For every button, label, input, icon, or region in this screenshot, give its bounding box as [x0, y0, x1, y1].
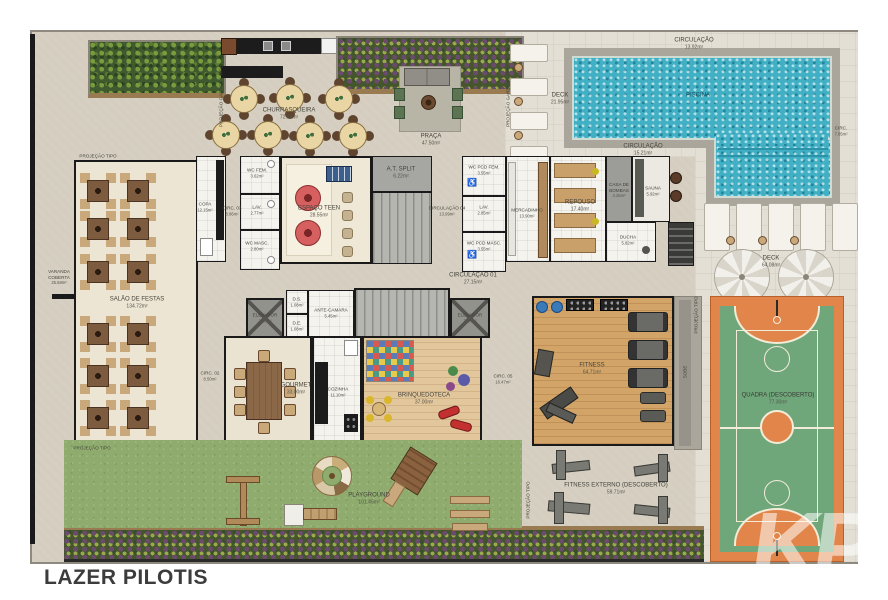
annotation-proj-garden-right: PROJEÇÃO GARDEN 1 TIPO	[505, 65, 511, 127]
repouso-lounger	[554, 213, 596, 228]
room-label-ante-camara: ANTE-CAMARA5.45m²	[314, 308, 347, 319]
room-label-wc-pcd-masc: WC PCD MASC.3.55m²	[467, 241, 501, 252]
square-table	[87, 180, 109, 202]
round-table	[339, 122, 367, 150]
service-stair-down	[668, 222, 694, 266]
side-table	[514, 97, 523, 106]
annotation-proj-garden-left: PROJEÇÃO GARDEN 1 TIPO	[218, 65, 224, 127]
room-label-circ-direita: CIRC.7.85m²	[834, 126, 847, 137]
room-label-sauna: SAUNA5.92m²	[645, 186, 661, 197]
pool-water-joint	[716, 134, 828, 144]
page-title: LAZER PILOTIS	[44, 566, 208, 590]
room-label-at-split: A.T. SPLIT6.22m²	[387, 166, 416, 179]
room-label-lav2: LAV.2.85m²	[477, 205, 490, 216]
chair	[284, 404, 296, 416]
room-label-de: D.E.1.08m²	[290, 321, 303, 332]
picnic-bench	[450, 496, 490, 504]
climber-box	[284, 504, 304, 526]
room-label-mercadinho: MERCADINHO13.90m²	[511, 208, 542, 219]
square-table	[87, 261, 109, 283]
round-table	[230, 85, 258, 113]
sun-lounger	[832, 203, 858, 251]
room-label-deck-direito: DECK64.08m²	[762, 255, 780, 268]
room-label-circ03: CIRC. 038.86m²	[223, 206, 242, 217]
round-table	[296, 122, 324, 150]
swing-bar	[226, 518, 260, 525]
square-table	[127, 261, 149, 283]
sun-lounger	[510, 112, 548, 130]
annotation-proj-tipo-fitness: PROJEÇÃO TIPO	[693, 296, 699, 333]
room-label-salao: SALÃO DE FESTAS134.72m²	[110, 296, 165, 309]
bbq-fridge	[321, 38, 337, 54]
chair	[284, 368, 296, 380]
teen-game-table	[295, 220, 321, 246]
round-table	[325, 85, 353, 113]
toy	[458, 374, 470, 386]
wheelchair-icon: ♿	[467, 250, 477, 259]
annotation-proj-tipo-bottom: PROJEÇÃO TIPO	[73, 445, 110, 451]
sun-lounger	[800, 203, 826, 251]
room-label-circulacao04: CIRCULAÇÃO 0413.99m²	[429, 206, 466, 217]
outdoor-gym-machine	[556, 450, 566, 480]
foosball-table	[326, 166, 352, 182]
kitchen-fridge	[344, 340, 358, 356]
round-table	[254, 121, 282, 149]
kitchen-island	[315, 362, 328, 424]
side-table	[758, 236, 767, 245]
toilet-icon	[267, 160, 275, 168]
sink-icon	[267, 200, 275, 208]
sun-lounger	[704, 203, 730, 251]
toy	[446, 382, 455, 391]
copa-fridge	[200, 238, 213, 256]
plant-pot	[592, 168, 599, 175]
room-label-lav1: LAV.2.77m²	[250, 205, 263, 216]
terrace-table	[670, 190, 682, 202]
plant-pot	[592, 218, 599, 225]
praca-center-table	[421, 95, 436, 110]
chair	[258, 350, 270, 362]
annotation-proj-tipo-top: PROJEÇÃO TIPO	[79, 153, 116, 159]
room-label-ds: D.S.1.08m²	[290, 297, 303, 308]
pool-lane-line	[718, 148, 828, 150]
room-label-deck-piscina: DECK21.95m²	[551, 92, 569, 105]
room-label-wc-masc: WC MASC.2.80m²	[245, 241, 268, 252]
chair	[258, 422, 270, 434]
room-label-espaco-teen: ESPAÇO TEEN28.55m²	[298, 205, 340, 218]
treadmill	[628, 340, 668, 360]
exercise-ball	[551, 301, 563, 313]
room-label-sobe: SOBE	[682, 366, 688, 379]
side-table	[514, 131, 523, 140]
treadmill	[628, 368, 668, 388]
room-label-gourmet: GOURMET33.00m²	[281, 382, 312, 395]
dumbbell-rack	[566, 299, 594, 311]
treadmill	[628, 312, 668, 332]
play-mat	[366, 340, 414, 382]
repouso-lounger	[554, 238, 596, 253]
square-table	[127, 218, 149, 240]
outdoor-gym-machine	[658, 454, 668, 482]
wc-pcd-fem-room	[462, 156, 506, 196]
room-label-circulacao-topo: CIRCULAÇÃO13.92m²	[674, 37, 713, 50]
hoop-post-top	[776, 300, 778, 316]
room-label-repouso: REPOUSO17.40m²	[565, 199, 595, 212]
outer-wall-left	[30, 34, 35, 544]
picnic-bench	[452, 523, 488, 531]
room-label-piscina: PISCINA	[686, 92, 710, 99]
square-table	[87, 365, 109, 387]
climber-bar	[303, 508, 337, 520]
outdoor-gym-machine	[554, 492, 564, 524]
room-label-varanda: VARANDA COBERTA25.58m²	[45, 269, 73, 285]
room-label-churrasqueira: CHURRASQUEIRA72.84m²	[263, 107, 316, 120]
room-label-wc-pcd-fem: WC PCD FEM.3.55m²	[469, 165, 500, 176]
room-label-copa: COPA12.15m²	[197, 202, 212, 213]
room-label-quadra: QUADRA (DESCOBERTO)77.30m²	[742, 392, 815, 405]
bean-bag	[342, 228, 353, 239]
room-label-cozinha: COZINHA11.10m²	[328, 387, 349, 398]
chair	[234, 368, 246, 380]
repouso-lounger	[554, 163, 596, 178]
square-table	[127, 180, 149, 202]
praca-armchair	[394, 88, 405, 101]
room-label-ducha: DUCHA5.82m²	[620, 235, 636, 246]
bean-bag	[342, 210, 353, 221]
bbq-sink	[281, 41, 291, 51]
square-table	[127, 323, 149, 345]
gym-machine	[640, 392, 666, 404]
kitchen-stove	[344, 414, 358, 432]
room-label-elevador-dir: ELEVADOR3.80m²	[458, 313, 483, 324]
kp-watermark-logo: KP	[744, 492, 877, 600]
court-center-circle	[760, 410, 794, 444]
sun-lounger	[510, 78, 548, 96]
praca-armchair	[452, 88, 463, 101]
gym-machine	[640, 410, 666, 422]
bbq-sink	[263, 41, 273, 51]
shower-icon	[642, 246, 650, 254]
bean-bag	[342, 246, 353, 257]
chair	[234, 404, 246, 416]
room-label-brinquedoteca: BRINQUEDOTECA37.00m²	[398, 392, 450, 405]
sun-lounger	[510, 44, 548, 62]
chair	[234, 386, 246, 398]
toilet-icon	[267, 256, 275, 264]
bbq-grill-box	[221, 38, 237, 55]
room-label-playground: PLAYGROUND101.45m²	[348, 492, 390, 505]
room-label-fitness-externo: FITNESS EXTERNO (DESCOBERTO)59.71m²	[564, 482, 667, 495]
sun-lounger	[768, 203, 794, 251]
room-label-wc-fem: WC FEM.3.62m²	[247, 168, 267, 179]
side-table	[726, 236, 735, 245]
wheelchair-icon: ♿	[467, 178, 477, 187]
swing-bar	[226, 476, 260, 483]
kids-table	[372, 402, 386, 416]
copa-counter	[216, 160, 224, 240]
gourmet-table	[246, 362, 282, 420]
carousel-hub	[329, 473, 335, 479]
dumbbell-rack	[600, 299, 628, 311]
bean-bag	[342, 192, 353, 203]
annotation-proj-tipo-externo: PROJEÇÃO TIPO	[525, 481, 531, 518]
room-label-fitness: FITNESS64.71m²	[579, 362, 604, 375]
room-label-circulacao-piscina: CIRCULAÇÃO15.21m²	[623, 143, 662, 156]
square-table	[87, 407, 109, 429]
room-label-praca: PRAÇA47.50m²	[421, 133, 442, 146]
side-table	[514, 63, 523, 72]
stair-block-upper	[372, 192, 432, 264]
square-table	[127, 365, 149, 387]
square-table	[87, 218, 109, 240]
room-label-circ05: CIRC. 0516.47m²	[494, 374, 513, 385]
room-label-casa-bombas: CASA DE BOMBAS4.26m²	[607, 182, 631, 198]
room-label-circulacao01: CIRCULAÇÃO 0127.15m²	[449, 272, 497, 285]
room-label-elevador-esq: ELEVADOR3.80m²	[253, 313, 278, 324]
exercise-ball	[536, 301, 548, 313]
sauna-bench	[635, 159, 644, 217]
praca-sofa	[404, 68, 450, 86]
round-table	[212, 121, 240, 149]
picnic-bench	[450, 510, 490, 518]
outdoor-gym-machine	[658, 496, 668, 524]
bbq-counter	[237, 38, 321, 54]
terrace-table	[670, 172, 682, 184]
pool-lane-line	[718, 155, 828, 157]
praca-armchair	[452, 106, 463, 119]
garden-strip-bottom	[64, 526, 704, 562]
bbq-counter	[221, 66, 283, 78]
toy	[448, 366, 458, 376]
room-label-circ02: CIRC. 028.50m²	[201, 371, 220, 382]
square-table	[87, 323, 109, 345]
garden-planter-topleft	[88, 40, 226, 98]
floorplan-canvas: ♿ ♿	[0, 0, 888, 600]
hoop-ring-top	[773, 316, 781, 324]
core-stairs	[354, 288, 450, 340]
praca-armchair	[394, 106, 405, 119]
court-ft-circle-top	[764, 346, 790, 372]
sun-lounger	[736, 203, 762, 251]
square-table	[127, 407, 149, 429]
side-table	[790, 236, 799, 245]
